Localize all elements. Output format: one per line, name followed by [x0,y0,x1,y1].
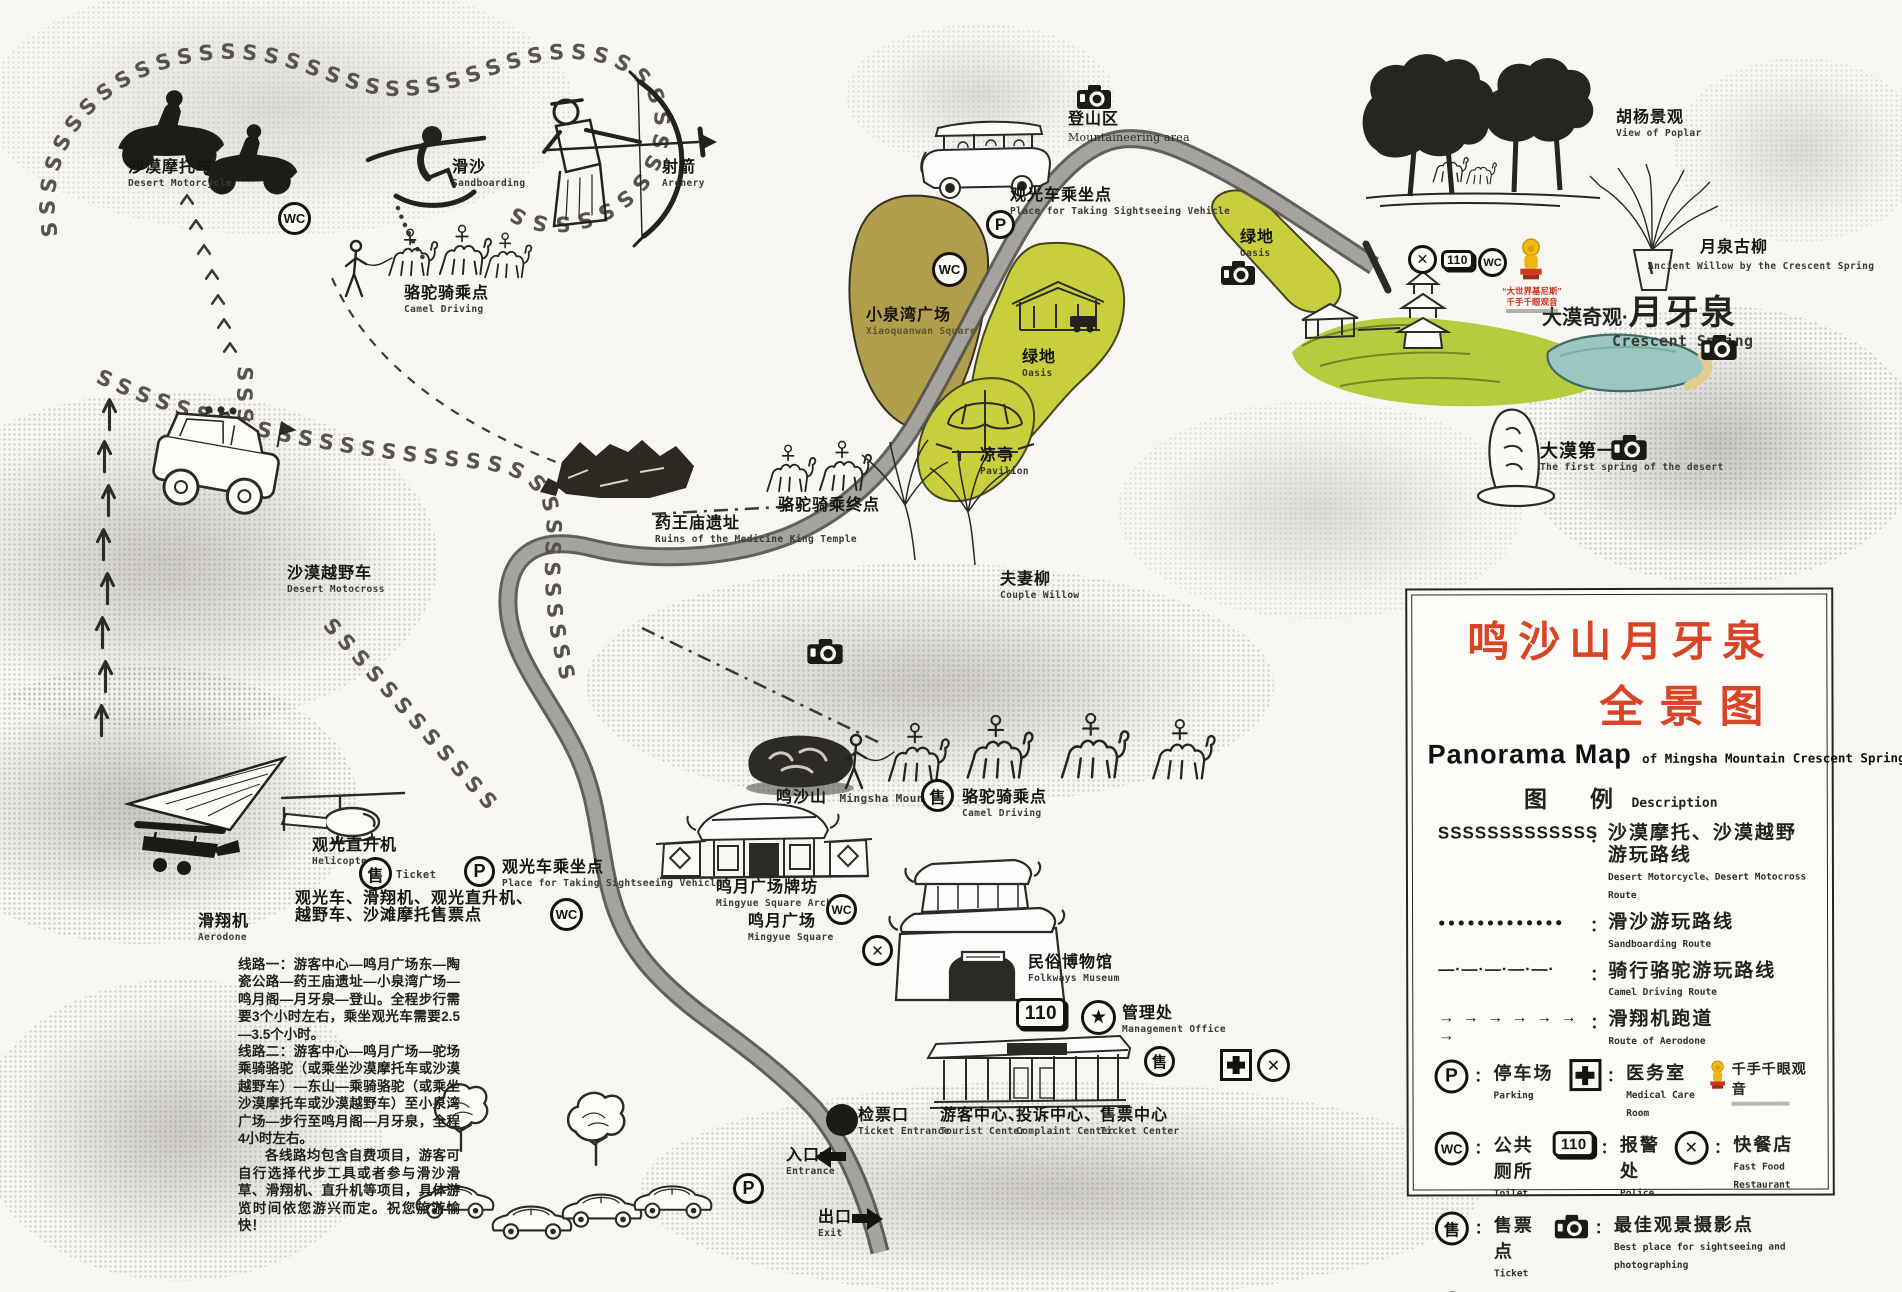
wc-icon: WC [932,252,967,287]
route-note-text: 各线路均包含自费项目，游客可自行选择代步工具或者参与滑沙滑草、滑翔机、直升机等项… [238,1148,460,1233]
route-symbol-dots: ●●●●●●●●●●●●● [1438,912,1590,929]
colon: ： [1475,1218,1490,1239]
legend-route-row: —·—·—·—·—· ： 骑行骆驼游玩路线Camel Driving Route [1438,960,1814,1001]
wc-icon: WC [1478,248,1507,277]
camera-icon [1076,84,1112,110]
legend-zh: 最佳观景摄影点 [1614,1215,1754,1235]
tiny-caption-bar [1732,1102,1790,1106]
parking-icon: P [464,856,495,887]
parking-icon: P [1434,1060,1468,1094]
poi-ticket-office-note: 观光车、滑翔机、观光直升机、 越野车、沙滩摩托售票点 [295,891,533,925]
panel-title-zh: 鸣沙山月牙泉 [1427,607,1813,669]
route-symbol-s: SSSSSSSSSSSSS [1438,823,1590,843]
poi-sandboarding: 滑沙 Sandboarding [452,160,525,189]
mingsha-stone-illustration [746,736,854,796]
label-zh: 观光车乘坐点 [1010,188,1230,205]
colon: ： [1595,1217,1610,1238]
poi-camel-driving-top: 骆驼骑乘点 Camel Driving [404,286,489,315]
label-zh: 绿地 [1022,350,1056,367]
poi-poplar-view: 胡杨景观 View of Poplar [1616,110,1702,139]
route-en: Route of Aerodone [1608,1036,1705,1047]
legend-zh: 售票点 [1494,1215,1534,1261]
poi-couple-willow: 夫妻柳 Couple Willow [1000,572,1080,601]
fast-food-icon: ✕ [1408,245,1437,274]
ticket-entrance-dot [826,1104,858,1136]
label-zh: 胡杨景观 [1616,110,1702,127]
legend-zh: 千手千眼观音 [1732,1061,1807,1097]
colon: ： [1590,961,1608,985]
fast-food-icon: ✕ [1674,1131,1708,1165]
wc-icon: WC [1435,1132,1469,1166]
poi-sightseeing-vehicle-top: 观光车乘坐点 Place for Taking Sightseeing Vehi… [1010,188,1230,217]
label-zh: 管理处 [1122,1006,1226,1023]
label-en: Place for Taking Sightseeing Vehicle [502,879,722,889]
legend-header: 图 例 Description [1428,779,1814,814]
trail-aerodone-runway [96,400,116,736]
label-en: View of Poplar [1616,129,1702,139]
legend-header-zh: 图 例 [1524,786,1623,812]
label-en: Ticket [396,870,436,881]
label-en: Management Office [1122,1025,1226,1035]
label-en: Ruins of the Medicine King Temple [655,535,857,545]
label-en: Desert Motorcycle [128,179,232,189]
route-2-text: 游客中心—鸣月广场—驼场乘骑骆驼（或乘坐沙漠摩托车或沙漠越野车）—东山—乘骑骆驼… [238,1044,460,1146]
poi-management-office: 管理处 Management Office [1122,1006,1226,1035]
medical-cross-icon [1220,1049,1252,1081]
trail-sandboarding-route [332,208,556,462]
poi-aerodone: 滑翔机 Aerodone [198,914,249,943]
legend-zh: 报警处 [1620,1135,1660,1181]
label-en: Tourist Center [940,1127,1026,1137]
label-zh: 鸣月广场牌坊 [716,880,851,897]
label-zh: 月牙泉 [1629,294,1737,332]
camera-icon [1220,260,1256,286]
parking-icon: P [986,210,1015,239]
caption-line: “大世界基尼斯” [1502,286,1562,296]
medical-cross-icon [1569,1059,1601,1091]
ticket-icon: 售 [921,779,954,812]
camera-icon [1700,334,1738,361]
poi-xiaoquanwan-square: 小泉湾广场 Xiaoquanwan Square [866,308,976,337]
svg-text:SSSSSSSSSSSSSSSSSSSSSSSSSSSSSS: SSSSSSSSSSSSSSSSSSSSSSSSSSSSSSSSSSSSSSSS… [0,0,674,239]
colon: ： [1590,823,1608,847]
label-zh: 射箭 [662,160,705,177]
police-110-icon: 110 [1441,250,1474,270]
legend-en: Medical Care Room [1626,1090,1695,1119]
poi-mingyue-square: 鸣月广场 Mingyue Square [748,914,834,943]
wc-icon: WC [278,202,311,235]
poi-desert-motorcycle: 沙漠摩托车 Desert Motorcycle [128,160,232,189]
label-en: Aerodone [198,933,249,943]
helicopter-illustration [282,793,404,842]
legend-route-row: SSSSSSSSSSSSS ： 沙漠摩托、沙漠越野游玩路线Desert Moto… [1438,822,1814,903]
panorama-map-canvas: SSSSSSSSSSSSSSSSSSSSSSSSSSSSSSSSSSSSSSSS… [0,0,1902,1292]
label-en: Camel Driving [404,305,489,315]
ticket-icon: 售 [359,857,392,890]
label-en: Oasis [1022,369,1056,379]
management-office-star-icon: ★ [1081,1000,1116,1035]
poi-archery: 射箭 Archery [662,160,705,189]
colon: ： [1590,1009,1608,1033]
camel-caravan-illustration [846,714,1215,788]
poplar-trees-illustration [1363,54,1600,206]
poi-medicine-king-temple: 药王庙遗址 Ruins of the Medicine King Temple [655,516,857,545]
label-zh: 观光车乘坐点 [502,860,722,877]
poi-camel-driving-mid: 骆驼骑乘点 Camel Driving [962,790,1047,819]
poi-ticket-word: Ticket [396,868,436,881]
ticket-icon: 售 [1144,1046,1175,1077]
route-1-label: 线路一： [238,957,294,972]
label-zh: 售票中心 [1100,1108,1180,1125]
wc-icon: WC [826,894,857,925]
police-110-icon: 110 [1553,1131,1595,1157]
poi-desert-motocross: 沙漠越野车 Desert Motocross [287,566,385,595]
label-zh: 鸣月广场 [748,914,834,931]
s-trail: SSSSSSSSSSSSSSSSSSSSSSSSSSSSSSSSSSSSSSSS… [0,0,674,239]
label-en: Ticket Center [1100,1127,1180,1137]
poi-mountaineering-area: 登山区 Mountaineering area [1068,112,1190,146]
legend-zh: 公共厕所 [1494,1135,1534,1181]
colon: ： [1475,1138,1490,1159]
panel-title-en-rest: of Mingsha Mountain Crescent Spring [1642,750,1902,766]
label-zh: 绿地 [1240,230,1274,247]
parking-cars-illustration [417,1084,712,1238]
poi-exit: 出口 Exit [818,1210,852,1239]
wc-icon: WC [550,898,583,931]
thousand-hand-guanyin-statue-icon [1516,238,1546,286]
legend-icon-row: 售 ： 售票点Ticket ： 最佳观景摄影点Best place for si… [1435,1211,1815,1282]
label-zh: 凉亭 [980,448,1029,465]
legend-en: Police [1620,1188,1654,1199]
legend-header-en: Description [1631,796,1717,811]
legend-en: Fast Food Restaurant [1733,1162,1790,1191]
panel-title-en: Panorama Map of Mingsha Mountain Crescen… [1428,738,1814,770]
fast-food-icon: ✕ [1257,1049,1290,1082]
label-zh: 越野车、沙滩摩托售票点 [295,908,533,925]
route-zh: 滑翔机跑道 [1608,1009,1713,1030]
legend-icon-row: P ： 停车场Parking ： 医务室Medical Care Room 千手… [1434,1059,1814,1122]
colon: ： [1601,1137,1616,1158]
label-zh: 观光直升机 [312,838,397,855]
label-zh: 沙漠摩托车 [128,160,232,177]
poi-ancient-willow-en: Ancient Willow by the Crescent Spring [1648,260,1874,272]
label-en: Mountaineering area [1068,131,1190,144]
poi-tourist-center: 游客中心、 Tourist Center [940,1108,1026,1137]
medicine-temple-ruins-illustration [540,440,694,498]
label-zh: 滑翔机 [198,914,249,931]
colon: ： [1590,912,1608,936]
label-zh: 沙漠越野车 [287,566,385,583]
label-zh: 药王庙遗址 [655,516,857,533]
poi-sightseeing-vehicle-mid: 观光车乘坐点 Place for Taking Sightseeing Vehi… [502,860,722,889]
poi-pavilion: 凉亭 Pavilion [980,448,1029,477]
legend-panel: 鸣沙山月牙泉 全景图 Panorama Map of Mingsha Mount… [1405,587,1835,1196]
label-zh: 检票口 [858,1108,950,1125]
fast-food-icon: ✕ [862,935,893,966]
route-zh2: 游玩路线 [1608,844,1814,866]
label-en: Entrance [786,1167,835,1177]
route-en: Camel Driving Route [1608,987,1717,998]
hang-glider-illustration [128,758,284,875]
route-en: Desert Motorcycle、Desert Motocross Route [1608,871,1806,901]
poi-oasis-2: 绿地 Oasis [1240,230,1274,259]
caption-line: 千手千眼观音 [1506,297,1557,307]
label-zh: 观光车、滑翔机、观光直升机、 [295,891,533,908]
guinness-caption: “大世界基尼斯” 千手千眼观音 [1494,286,1570,313]
label-zh: 月泉古柳 [1700,240,1768,257]
poi-folkways-museum: 民俗博物馆 Folkways Museum [1028,955,1120,984]
label-en: Xiaoquanwan Square [866,327,976,337]
label-en: Folkways Museum [1028,974,1120,984]
legend-en: Ticket [1494,1268,1528,1279]
route-zh: 骑行骆驼游玩路线 [1608,960,1776,981]
route-symbol-arrows: → → → → → → → [1438,1009,1590,1045]
label-en: Oasis [1240,249,1274,259]
label-zh: 民俗博物馆 [1028,955,1120,972]
label-en: Camel Driving [962,809,1047,819]
colon: ： [1714,1137,1729,1158]
label-en: Exit [818,1229,852,1239]
label-en: Place for Taking Sightseeing Vehicle [1010,207,1230,217]
poi-ticket-entrance: 检票口 Ticket Entrance [858,1108,950,1137]
label-zh: 夫妻柳 [1000,572,1080,589]
police-110-icon: 110 [1016,998,1066,1029]
colon: ： [1607,1065,1622,1086]
entrance-arrow-icon [820,1152,846,1161]
route-zh: 沙漠摩托、沙漠越野 [1608,823,1797,844]
poi-oasis-1: 绿地 Oasis [1022,350,1056,379]
visitor-center-illustration [928,1036,1130,1108]
label-en: Ticket Entrance [858,1127,950,1137]
panel-title-en-strong: Panorama Map [1428,739,1632,770]
label-zh: 小泉湾广场 [866,308,976,325]
legend-en: Parking [1494,1090,1534,1101]
label-zh: 骆驼骑乘点 [962,790,1047,807]
label-zh: 登山区 [1068,112,1190,129]
camera-icon [1610,434,1648,461]
ticket-icon: 售 [1435,1212,1469,1246]
panel-title-zh2: 全景图 [1427,670,1813,735]
legend-en: Toilet [1494,1188,1528,1199]
label-zh: 骆驼骑乘终点 [778,498,880,515]
label-en: Couple Willow [1000,591,1080,601]
route-symbol-dashdot: —·—·—·—·—· [1438,961,1590,979]
label-zh: 出口 [818,1210,852,1227]
legend-zh: 医务室 [1626,1063,1686,1083]
tiny-caption-bar [1506,309,1558,313]
label-en: Sandboarding [452,179,525,189]
label-zh: 骆驼骑乘点 [404,286,489,303]
label-en: Archery [662,179,705,189]
poi-ticket-center: 售票中心 Ticket Center [1100,1108,1180,1137]
legend-icon-row: WC ： 公共厕所Toilet 110 ： 报警处Police ✕ ： 快餐店F… [1435,1131,1815,1202]
camera-icon [806,638,844,665]
label-zh: 游客中心、 [940,1108,1026,1125]
route-en: Sandboarding Route [1608,938,1711,949]
legend-zh: 快餐店 [1733,1135,1793,1155]
legend-route-row: ●●●●●●●●●●●●● ： 滑沙游玩路线Sandboarding Route [1438,911,1814,952]
label-en: Ancient Willow by the Crescent Spring [1648,262,1874,272]
label-zh: 滑沙 [452,160,525,177]
label-en: The first spring of the desert [1540,463,1724,473]
thousand-hand-guanyin-statue-icon [1707,1059,1727,1095]
legend-zh: 停车场 [1493,1063,1553,1083]
legend-route-row: → → → → → → → ： 滑翔机跑道Route of Aerodone [1438,1009,1814,1050]
footprint-trail [181,195,236,351]
camera-icon [1554,1211,1589,1242]
exit-arrow-icon [852,1214,878,1223]
label-zh: 鸣沙山 [776,790,827,807]
route-zh: 滑沙游玩路线 [1608,911,1734,932]
camel-end-illustration [767,441,871,491]
label-en: Desert Motocross [287,585,385,595]
label-en: Pavilion [980,467,1029,477]
route-2-label: 线路二： [238,1044,294,1059]
route-description: 线路一：游客中心—鸣月广场东—陶瓷公路—药王庙遗址—小泉湾广场—鸣月阁—月牙泉—… [238,956,460,1235]
poi-ancient-willow: 月泉古柳 [1700,240,1768,257]
colon: ： [1474,1066,1489,1087]
label-en: Mingyue Square [748,933,834,943]
poi-camel-riding-end: 骆驼骑乘终点 [778,498,880,515]
legend-en: Best place for sightseeing and photograp… [1614,1242,1786,1271]
parking-icon: P [733,1173,764,1204]
